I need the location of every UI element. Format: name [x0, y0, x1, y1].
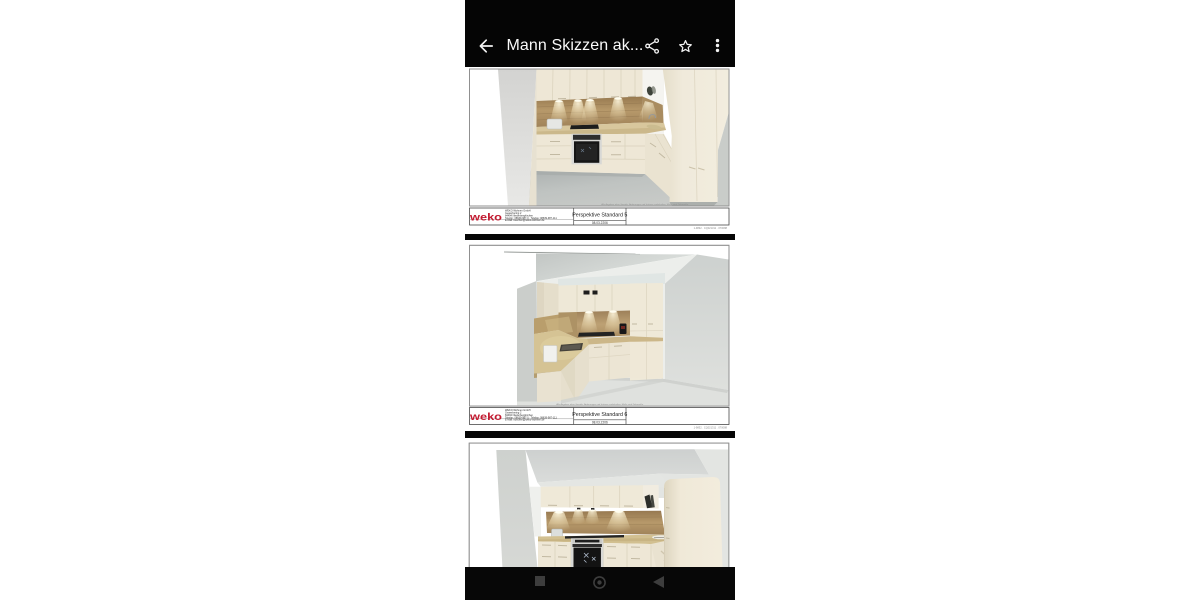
svg-text:weko: weko	[469, 410, 502, 422]
svg-text:Alle Angaben ohne Gewähr. Ände: Alle Angaben ohne Gewähr. Änderungen und…	[556, 402, 644, 405]
svg-text:Perspektive Standard 5: Perspektive Standard 5	[572, 213, 627, 219]
svg-text:E-Mail: kuechen@weko-wohnen.de: E-Mail: kuechen@weko-wohnen.de	[505, 219, 545, 222]
svg-text:Perspektive Standard 6: Perspektive Standard 6	[572, 412, 627, 418]
svg-text:1-9832 . CQ021311 . 070088: 1-9832 . CQ021311 . 070088	[694, 226, 728, 230]
svg-text:1-9832 . CQ021311 . 070088: 1-9832 . CQ021311 . 070088	[694, 425, 728, 429]
svg-text:08.03.2206: 08.03.2206	[592, 221, 608, 225]
svg-text:E-Mail: kuechen@weko-wohnen.de: E-Mail: kuechen@weko-wohnen.de	[505, 418, 545, 421]
svg-text:08.03.2206: 08.03.2206	[592, 420, 608, 424]
svg-text:weko: weko	[469, 211, 502, 223]
